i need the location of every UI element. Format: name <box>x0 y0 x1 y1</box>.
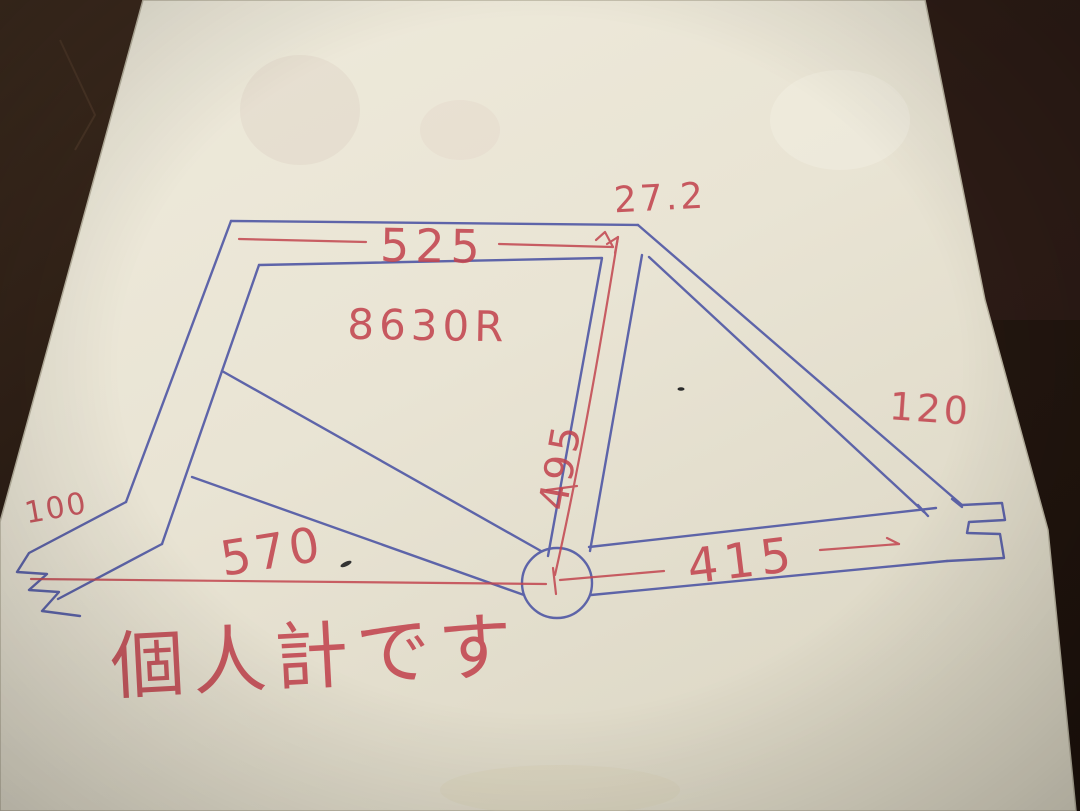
seatpost-diameter-label: 27.2 <box>613 176 707 222</box>
top-tube-length-label: 525 <box>380 218 487 274</box>
tubing-spec-label: 8630R <box>347 300 509 352</box>
head-tube-length-label: 120 <box>888 384 972 434</box>
bicycle-frame-sketch: 27.2 525 8630R 495 120 100 570 415 個人計です <box>0 0 1080 811</box>
photo-of-sketch: 27.2 525 8630R 495 120 100 570 415 個人計です <box>0 0 1080 811</box>
pen-speck <box>678 387 685 391</box>
